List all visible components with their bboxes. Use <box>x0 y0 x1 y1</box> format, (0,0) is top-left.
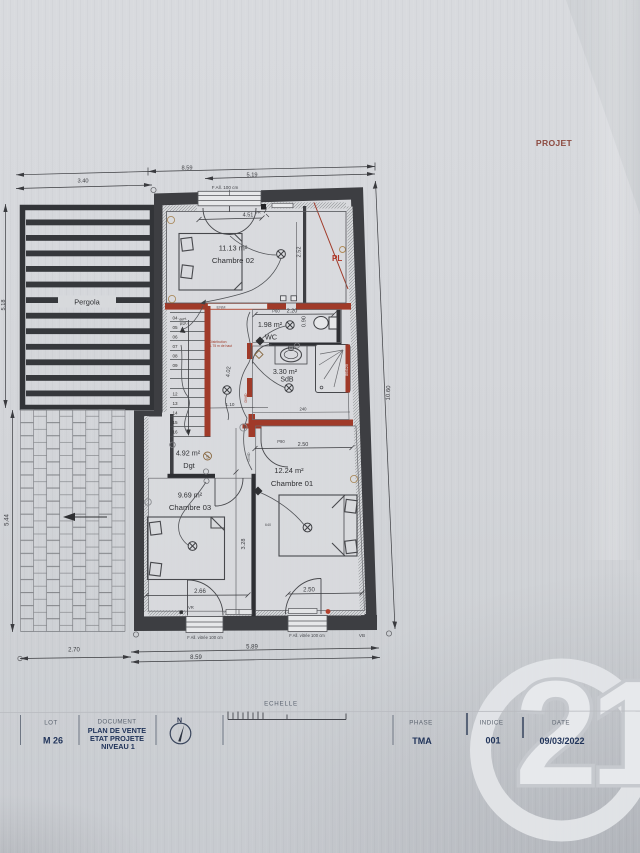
svg-text:2.20: 2.20 <box>287 309 298 315</box>
svg-text:0.90: 0.90 <box>302 316 308 327</box>
svg-text:5.18: 5.18 <box>1 299 7 310</box>
svg-text:10.60: 10.60 <box>386 385 393 401</box>
svg-text:07: 07 <box>173 344 179 349</box>
svg-text:DMD: DMD <box>243 393 248 402</box>
svg-text:5.89: 5.89 <box>246 645 258 651</box>
svg-text:11.13 m²: 11.13 m² <box>219 244 248 253</box>
svg-text:4.51: 4.51 <box>243 213 254 219</box>
svg-text:PROJET: PROJET <box>536 138 573 148</box>
svg-text:P60: P60 <box>272 309 280 314</box>
svg-text:F All. vitrée 100 cm: F All. vitrée 100 cm <box>289 633 325 638</box>
svg-text:3.28: 3.28 <box>241 539 247 550</box>
svg-text:80x120: 80x120 <box>345 364 349 376</box>
svg-text:VR: VR <box>255 210 261 215</box>
svg-text:2.50: 2.50 <box>298 442 309 448</box>
svg-text:2.50: 2.50 <box>303 588 315 594</box>
svg-text:PL: PL <box>332 254 342 263</box>
svg-text:21: 21 <box>515 651 640 816</box>
svg-text:PHASE: PHASE <box>409 720 432 727</box>
svg-text:VR: VR <box>188 605 194 610</box>
svg-text:LOT: LOT <box>44 720 58 727</box>
svg-text:4.02: 4.02 <box>226 366 233 377</box>
svg-text:08: 08 <box>173 354 179 359</box>
svg-text:1.75 m de haut: 1.75 m de haut <box>210 344 233 348</box>
svg-text:2.70: 2.70 <box>68 648 80 654</box>
svg-text:14: 14 <box>173 411 179 416</box>
svg-text:2.66: 2.66 <box>194 589 206 595</box>
svg-text:640: 640 <box>265 523 271 527</box>
svg-text:S: S <box>206 454 209 459</box>
svg-text:05: 05 <box>173 325 179 330</box>
svg-text:240: 240 <box>300 407 308 412</box>
svg-text:001: 001 <box>485 736 500 746</box>
svg-text:8.59: 8.59 <box>190 655 202 661</box>
svg-text:DMD: DMD <box>246 452 251 461</box>
svg-text:Chambre 02: Chambre 02 <box>212 256 254 265</box>
svg-text:Chambre 01: Chambre 01 <box>271 479 313 488</box>
svg-text:5.19: 5.19 <box>246 173 257 179</box>
svg-text:SdB: SdB <box>280 377 294 384</box>
svg-text:N: N <box>177 718 182 725</box>
svg-text:13: 13 <box>173 401 179 406</box>
svg-text:M 26: M 26 <box>43 736 63 746</box>
svg-text:06: 06 <box>173 335 179 340</box>
svg-text:WC: WC <box>265 333 278 342</box>
svg-text:VB: VB <box>359 633 365 638</box>
svg-text:1.98 m²: 1.98 m² <box>258 320 283 329</box>
svg-text:Pergola: Pergola <box>74 298 100 307</box>
svg-text:16: 16 <box>173 430 179 435</box>
svg-text:09/03/2022: 09/03/2022 <box>539 736 584 746</box>
svg-text:04: 04 <box>173 316 179 321</box>
svg-text:09: 09 <box>173 363 179 368</box>
svg-text:Dgt: Dgt <box>183 461 195 470</box>
svg-text:4.92 m²: 4.92 m² <box>176 449 201 458</box>
svg-text:3.40: 3.40 <box>77 179 88 185</box>
svg-text:INDICE: INDICE <box>480 720 504 727</box>
svg-text:NIVEAU 1: NIVEAU 1 <box>101 742 135 751</box>
svg-text:3.30 m²: 3.30 m² <box>273 367 298 376</box>
svg-text:15: 15 <box>173 420 179 425</box>
svg-text:2.52: 2.52 <box>297 247 303 258</box>
svg-text:5.44: 5.44 <box>5 514 11 526</box>
svg-text:1.10: 1.10 <box>226 402 235 407</box>
svg-text:TMA: TMA <box>412 736 432 746</box>
svg-text:Chambre 03: Chambre 03 <box>169 503 211 512</box>
svg-text:DATE: DATE <box>552 720 570 727</box>
svg-text:9.69 m²: 9.69 m² <box>178 491 203 500</box>
svg-text:12.24 m²: 12.24 m² <box>274 466 304 475</box>
svg-text:8.59: 8.59 <box>181 166 192 172</box>
svg-text:ENM: ENM <box>217 305 226 310</box>
svg-text:ECHELLE: ECHELLE <box>264 701 298 708</box>
svg-text:F All. vitrée 100 cm: F All. vitrée 100 cm <box>187 635 223 640</box>
svg-text:F All. 100 cm: F All. 100 cm <box>212 185 239 190</box>
svg-text:P90: P90 <box>277 439 285 444</box>
svg-text:DOCUMENT: DOCUMENT <box>98 719 137 726</box>
svg-text:12: 12 <box>173 392 179 397</box>
